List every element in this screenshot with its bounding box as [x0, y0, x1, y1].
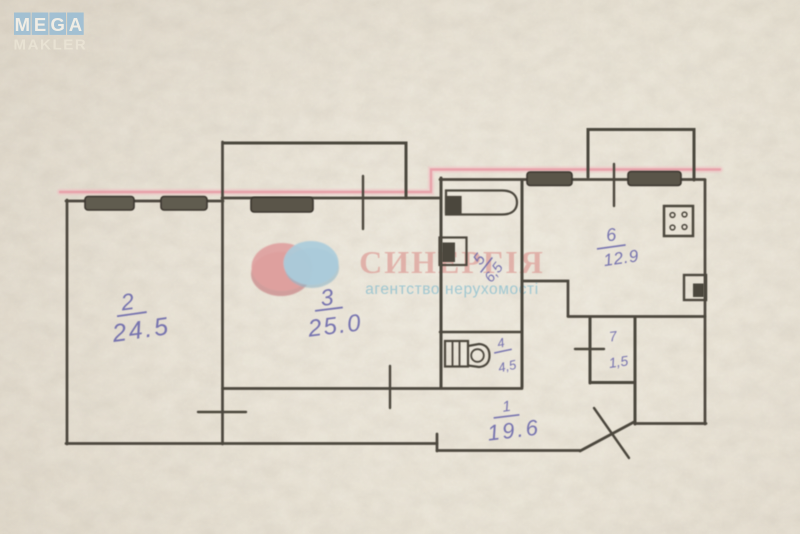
svg-text:E: E [34, 14, 46, 35]
svg-text:1,5: 1,5 [608, 352, 630, 371]
svg-text:M: M [15, 14, 30, 35]
svg-text:G: G [51, 14, 65, 35]
svg-text:MAKLER: MAKLER [14, 37, 88, 54]
svg-text:A: A [69, 14, 82, 35]
svg-text:агентство нерухомості: агентство нерухомості [365, 281, 539, 298]
